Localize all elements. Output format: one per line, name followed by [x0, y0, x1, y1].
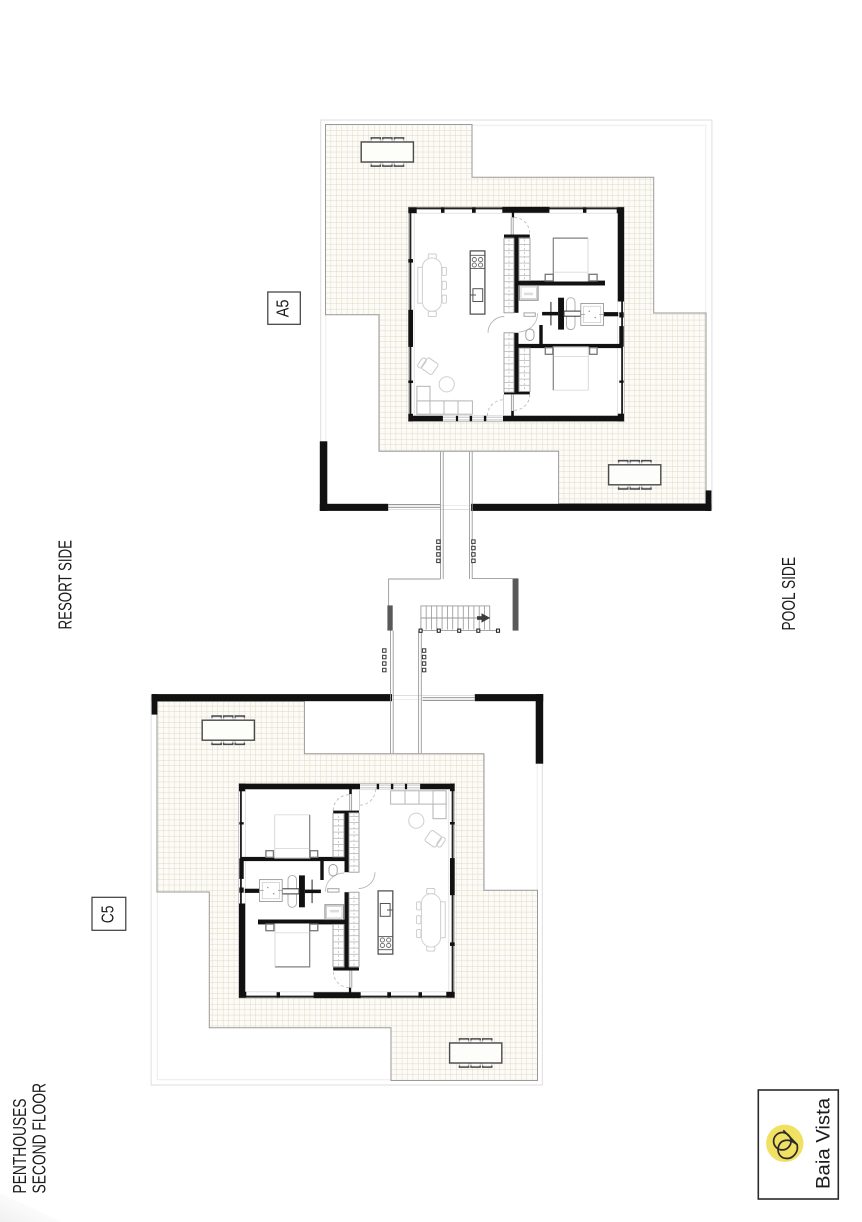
- svg-text:SECOND FLOOR: SECOND FLOOR: [30, 1083, 50, 1194]
- svg-text:PENTHOUSES: PENTHOUSES: [10, 1099, 30, 1194]
- svg-text:Baia Vista: Baia Vista: [814, 1098, 835, 1189]
- svg-text:C5: C5: [98, 906, 118, 924]
- svg-text:A5: A5: [273, 300, 293, 318]
- svg-text:RESORT SIDE: RESORT SIDE: [55, 540, 76, 630]
- svg-text:POOL SIDE: POOL SIDE: [778, 557, 799, 631]
